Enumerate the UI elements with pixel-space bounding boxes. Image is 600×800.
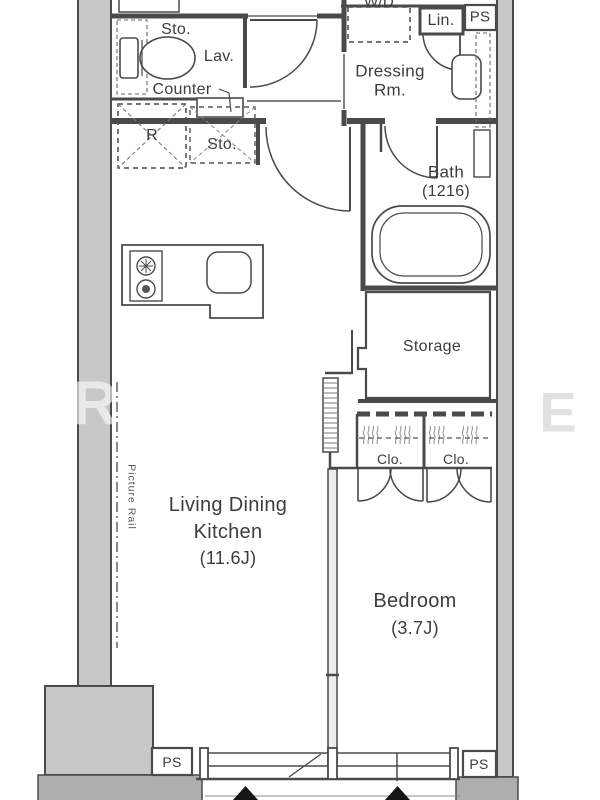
label-dressing-line1: Dressing	[355, 63, 424, 80]
window-marker-triangle-right	[385, 786, 410, 800]
label-bath-size: (1216)	[422, 184, 470, 200]
label-ldk-line2: Kitchen	[194, 522, 263, 542]
label-storage: Storage	[403, 339, 461, 355]
bathtub-icon	[372, 206, 490, 283]
label-ldk-size: (11.6J)	[200, 549, 257, 567]
bottom-right-band	[456, 777, 518, 800]
label-bedroom-name: Bedroom	[373, 591, 456, 611]
watermark-letter-right: E	[539, 380, 576, 445]
bath-counter	[474, 130, 490, 177]
window-marker-triangle-left	[233, 786, 258, 800]
left-outer-wall	[78, 0, 111, 688]
fixtures	[117, 7, 490, 648]
label-bedroom-size: (3.7J)	[391, 619, 439, 637]
label-kitchen-storage: Sto.	[207, 137, 237, 153]
floorplan-canvas: R E Sto. Lav. Counter W/D Lin. PS Dressi…	[0, 0, 600, 800]
stove-icon	[130, 251, 162, 301]
label-entry-storage: Sto.	[161, 22, 191, 38]
label-washer-dryer: W/D	[364, 0, 394, 10]
top-cut-box	[119, 0, 179, 12]
label-counter: Counter	[152, 82, 211, 98]
label-ps-top-right: PS	[470, 10, 491, 25]
interior-walls	[110, 0, 497, 768]
bottom-left-band	[38, 775, 202, 800]
entrance-door	[248, 16, 319, 87]
label-ps-bottom-left: PS	[162, 755, 181, 769]
hanger-icons	[363, 426, 477, 444]
label-lavatory: Lav.	[204, 49, 234, 65]
label-bath-name: Bath	[428, 164, 464, 181]
ldk-bedroom-divider	[326, 469, 339, 768]
label-closet-left: Clo.	[377, 452, 403, 466]
label-closet-right: Clo.	[443, 452, 469, 466]
washbasin-icon	[452, 55, 481, 99]
balcony-windows	[196, 748, 460, 800]
label-dressing-line2: Rm.	[374, 82, 406, 99]
label-refrigerator: R	[146, 128, 158, 144]
washer-dryer-box	[348, 7, 410, 42]
ldk-door	[266, 127, 350, 211]
label-picture-rail: Picture Rail	[126, 464, 137, 530]
closet-doors	[358, 468, 491, 502]
sink-icon	[207, 252, 251, 293]
right-outer-wall	[497, 0, 513, 777]
label-ldk-line1: Living Dining	[169, 495, 287, 515]
duct-shaft-hatch	[323, 378, 338, 452]
bottom-left-pillar	[45, 686, 153, 775]
label-linen: Lin.	[428, 13, 455, 29]
label-ps-bottom-right: PS	[469, 757, 488, 771]
watermark-letter-left: R	[73, 369, 118, 440]
